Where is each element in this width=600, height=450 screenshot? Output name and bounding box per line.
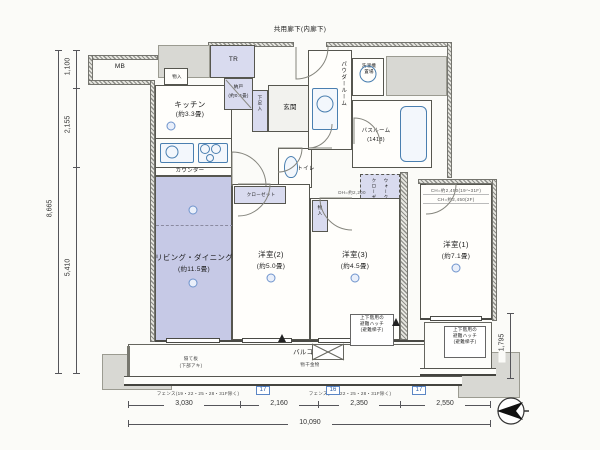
wall-segment <box>492 179 497 321</box>
kitchen-sink <box>160 143 194 163</box>
bedroom2-size-label: (約5.0畳) <box>232 263 310 271</box>
bedroom2-label: 洋室(2) <box>232 250 310 260</box>
corridor-top-label: 共用廊下(内廊下) <box>240 26 360 34</box>
dim-tick <box>128 401 129 408</box>
floor-plan: 共用廊下(内廊下) MB TR キッチン (約3.3畳) 物入 カウンター リビ… <box>0 0 600 450</box>
wall-segment <box>88 55 158 60</box>
balcony-label: バルコニー <box>260 349 360 357</box>
bedroom-2 <box>232 184 310 340</box>
kitchen-stove <box>198 143 228 163</box>
storage-box: 物入 <box>164 68 188 85</box>
dim-tick <box>73 50 80 51</box>
bedroom-1 <box>420 184 492 320</box>
shoe-cabinet-label: 下足入 <box>257 95 263 112</box>
monohoshi-label: 物干金物 <box>270 362 350 368</box>
dim-line-right <box>510 313 511 378</box>
dim-label-left-2: 2,155 <box>65 105 72 145</box>
bedroom3-storage: 物入 <box>312 200 328 232</box>
bathtub <box>400 106 427 162</box>
powder-room-label: パウダールーム <box>339 61 346 107</box>
partition-note-line2: (下部アキ) <box>174 363 208 369</box>
bedroom1-size-label: (約7.1畳) <box>420 253 492 261</box>
dim-label-bottom-3: 2,350 <box>339 400 379 407</box>
dim-tick <box>507 313 514 314</box>
laundry-label-1: 洗濯機 <box>353 63 385 69</box>
bedroom1-balcony-railing <box>420 368 496 376</box>
dh-note: DH=約2,200 <box>322 190 382 196</box>
dim-tick <box>400 401 401 408</box>
partition-note-line1: 隔て板 <box>174 356 208 362</box>
compass-circle <box>498 398 524 424</box>
bedroom3-label: 洋室(3) <box>310 250 400 260</box>
bedroom3-size-label: (約4.5畳) <box>310 263 400 271</box>
dim-label-left-total: 8,665 <box>47 189 54 229</box>
dim-tick <box>490 401 491 408</box>
bedroom2-closet-label: クローゼット <box>235 192 287 198</box>
hatch-x-box <box>312 344 344 360</box>
door-arc-living <box>232 152 266 186</box>
nando-label: 納戸 <box>222 84 255 90</box>
kitchen-size-label: (約3.3畳) <box>140 111 240 119</box>
dim-tick <box>55 373 62 374</box>
shoe-cabinet: 下足入 <box>252 90 268 132</box>
dim-tick <box>55 50 62 51</box>
dim-tick <box>507 378 514 379</box>
bathroom-label: バスルーム <box>352 128 400 135</box>
dim-label-bottom-4: 2,550 <box>425 400 465 407</box>
dim-label-right: 1,795 <box>499 323 506 363</box>
wall-segment <box>88 80 155 85</box>
wall-segment-right <box>447 42 452 178</box>
dim-tick <box>73 373 80 374</box>
storage-box-label: 物入 <box>165 74 189 80</box>
laundry-label-2: 置場 <box>353 69 385 75</box>
fence-note-left: フェンス(19・22・25・28・31F除く) <box>138 391 258 397</box>
bedroom2-closet: クローゼット <box>234 186 286 204</box>
genkan-label: 玄関 <box>269 104 311 112</box>
window <box>166 338 220 343</box>
window <box>242 338 292 343</box>
bedroom3-storage-label: 物入 <box>317 205 323 216</box>
dim-label-bottom-2: 2,160 <box>259 400 299 407</box>
sash-marker: 16 <box>326 386 340 395</box>
structure-block <box>386 56 447 96</box>
dim-label-left-1: 1,100 <box>65 47 72 87</box>
ch-note-2: CH=約2,450(2F) <box>423 197 489 204</box>
evacuation-hatch-note: 上下階用の 避難ハッチ (避難梯子) <box>350 314 394 346</box>
toilet-label: トイレ <box>294 166 318 173</box>
wall-segment-top <box>326 42 452 47</box>
vanity-fixture <box>312 88 338 130</box>
compass-north-arrow <box>497 402 523 420</box>
area-divider-line <box>156 225 233 226</box>
dim-tick <box>240 401 241 408</box>
dim-tick <box>73 167 80 168</box>
sash-marker: 17 <box>256 386 270 395</box>
dim-line-left-total <box>58 50 59 373</box>
trunk-room: TR <box>210 45 255 78</box>
window <box>430 316 482 321</box>
meter-box-label: MB <box>105 63 135 71</box>
wall-segment <box>400 172 408 340</box>
bedroom1-label: 洋室(1) <box>420 240 492 250</box>
fence-note-right: フェンス(19・22・25・28・31F除く) <box>290 391 410 397</box>
balcony-railing <box>124 376 462 386</box>
dim-label-bottom-total: 10,090 <box>288 419 332 426</box>
dim-label-left-3: 5,410 <box>65 248 72 288</box>
genkan-entrance: 玄関 <box>268 85 310 132</box>
dim-tick <box>318 401 319 408</box>
evacuation-hatch-note: 上下階用の 避難ハッチ (避難梯子) <box>444 326 486 358</box>
dim-tick <box>73 88 80 89</box>
laundry-space: 洗濯機 置場 <box>352 58 384 96</box>
sash-marker: 17 <box>412 386 426 395</box>
bathroom-size-label: (1418) <box>352 137 400 144</box>
dim-tick <box>128 420 129 427</box>
ch-note-1: CH=約2,450(19〜31F) <box>423 188 489 195</box>
trunk-room-label: TR <box>211 56 256 64</box>
dim-line-left <box>76 50 77 373</box>
hatch-note-line3: (避難梯子) <box>445 339 485 345</box>
dim-label-bottom-1: 3,030 <box>164 400 204 407</box>
counter-label: カウンター <box>150 168 230 175</box>
hatch-note-line3: (避難梯子) <box>351 327 393 333</box>
balcony-partition <box>127 346 130 376</box>
dim-tick <box>490 420 491 427</box>
